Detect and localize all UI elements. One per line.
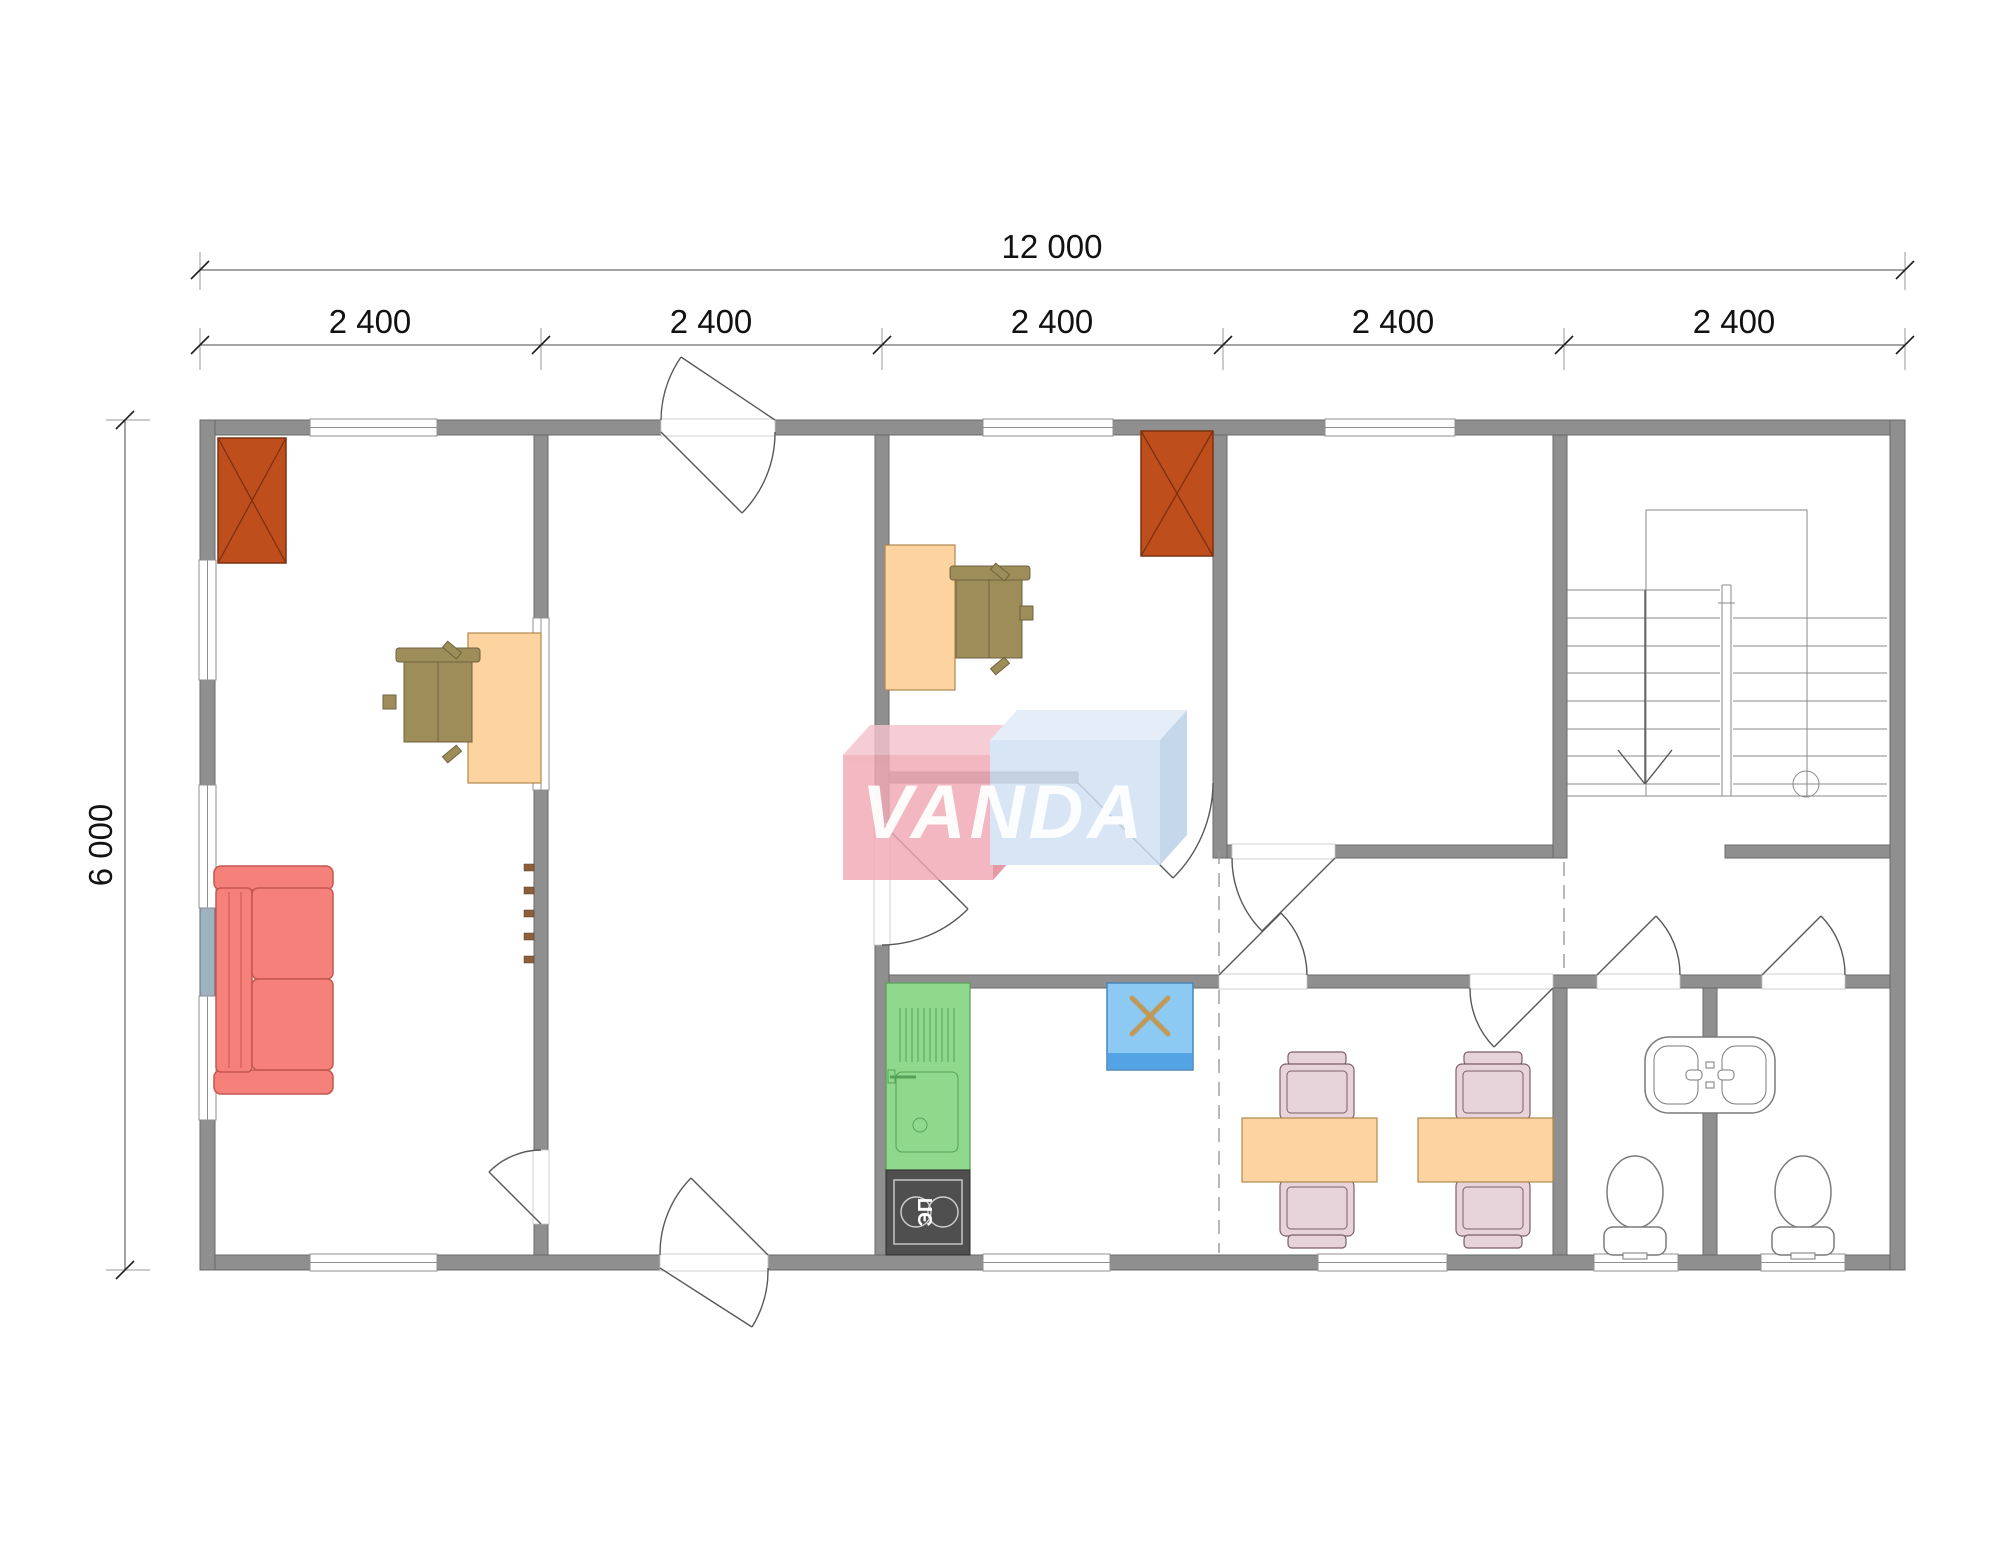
wall-wc-divider xyxy=(1703,988,1717,1255)
coat-hooks-icon xyxy=(524,864,534,963)
dining-chair-icon xyxy=(1280,1180,1354,1248)
stair-down-arrow-icon xyxy=(1618,590,1672,784)
office-chair-icon xyxy=(383,641,480,763)
office-2-furniture xyxy=(885,431,1213,690)
segment-label-3: 2 400 xyxy=(1011,303,1094,340)
door-opening-dining xyxy=(1470,974,1553,989)
floor-plan-page: 12 000 2 400 2 400 2 400 2 400 2 400 6 0… xyxy=(0,0,2000,1563)
window-bottom-dining xyxy=(1318,1254,1447,1271)
door-opening-wc-2 xyxy=(1762,974,1845,989)
door-swing-kitchen xyxy=(1219,913,1307,975)
staircase xyxy=(1567,510,1887,797)
wash-basins-icon xyxy=(1645,1037,1775,1113)
door-swing-wc-1 xyxy=(1597,916,1680,975)
watermark-text: VANDA xyxy=(862,770,1147,855)
desk-2-icon xyxy=(885,545,955,690)
chimney-icon xyxy=(218,438,286,563)
stair-stringer xyxy=(1718,585,1735,796)
stair-treads-right xyxy=(1733,618,1887,784)
stair-treads-left xyxy=(1567,590,1720,784)
door-opening-entrance-top xyxy=(661,419,775,436)
window-bottom-kitchen xyxy=(983,1254,1110,1271)
overall-width-label: 12 000 xyxy=(1002,228,1103,265)
stove-label: ЭП xyxy=(915,1198,937,1227)
floor-plan-canvas: 12 000 2 400 2 400 2 400 2 400 2 400 6 0… xyxy=(0,0,2000,1563)
window-left-3 xyxy=(199,996,216,1120)
door-opening-wc-1 xyxy=(1597,974,1680,989)
dining-table-icon xyxy=(1418,1118,1553,1182)
wall-corridor-bottom xyxy=(889,975,1890,988)
wall-interior-4-upper xyxy=(1553,435,1567,858)
electric-stove-icon: ЭП xyxy=(886,1170,970,1255)
door-swing-room-3 xyxy=(1232,858,1335,931)
dimension-overall-height: 6 000 xyxy=(82,411,150,1279)
window-left-1 xyxy=(199,560,216,680)
toilet-icon xyxy=(1772,1156,1834,1259)
door-swing-entrance-bottom xyxy=(660,1178,768,1327)
wc-fixtures xyxy=(1604,1037,1834,1259)
wall-exterior-right xyxy=(1890,420,1905,1270)
window-top-room-a xyxy=(310,419,437,436)
dining-chair-icon xyxy=(1456,1052,1530,1120)
door-swing-dining xyxy=(1470,988,1553,1047)
window-bottom-room-a xyxy=(310,1254,437,1271)
dimension-overall-width: 12 000 xyxy=(191,228,1914,290)
wall-under-stairs xyxy=(1725,845,1890,858)
door-opening-entrance-bottom xyxy=(660,1254,768,1271)
window-left-2 xyxy=(199,785,216,908)
dimension-segments: 2 400 2 400 2 400 2 400 2 400 xyxy=(191,303,1914,370)
wall-left-pier xyxy=(200,908,215,996)
window-top-room-3 xyxy=(1325,419,1455,436)
sofa-icon xyxy=(214,866,333,1094)
kitchen-furniture: ЭП xyxy=(886,983,1193,1255)
refrigerator-icon xyxy=(1107,983,1193,1070)
room-a-furniture xyxy=(214,438,541,1094)
wall-interior-3 xyxy=(1213,435,1227,858)
dining-chair-icon xyxy=(1456,1180,1530,1248)
chimney-2-icon xyxy=(1141,431,1213,556)
wall-interior-1 xyxy=(534,435,548,1255)
segment-label-4: 2 400 xyxy=(1352,303,1435,340)
dining-table-icon xyxy=(1242,1118,1377,1182)
office-chair-2-icon xyxy=(950,563,1033,675)
door-opening-room-3 xyxy=(1232,844,1335,859)
segment-label-5: 2 400 xyxy=(1693,303,1776,340)
segment-label-1: 2 400 xyxy=(329,303,412,340)
door-opening-room-a xyxy=(533,1150,549,1224)
door-swing-wc-2 xyxy=(1762,916,1845,975)
dining-chair-icon xyxy=(1280,1052,1354,1120)
overall-height-label: 6 000 xyxy=(82,804,119,887)
kitchen-counter-icon xyxy=(886,983,970,1170)
toilet-icon xyxy=(1604,1156,1666,1259)
wall-interior-4-lower xyxy=(1553,975,1567,1255)
door-opening-kitchen xyxy=(1219,974,1307,989)
segment-label-2: 2 400 xyxy=(670,303,753,340)
dining-furniture xyxy=(1242,1052,1553,1248)
window-top-office-2 xyxy=(983,419,1113,436)
